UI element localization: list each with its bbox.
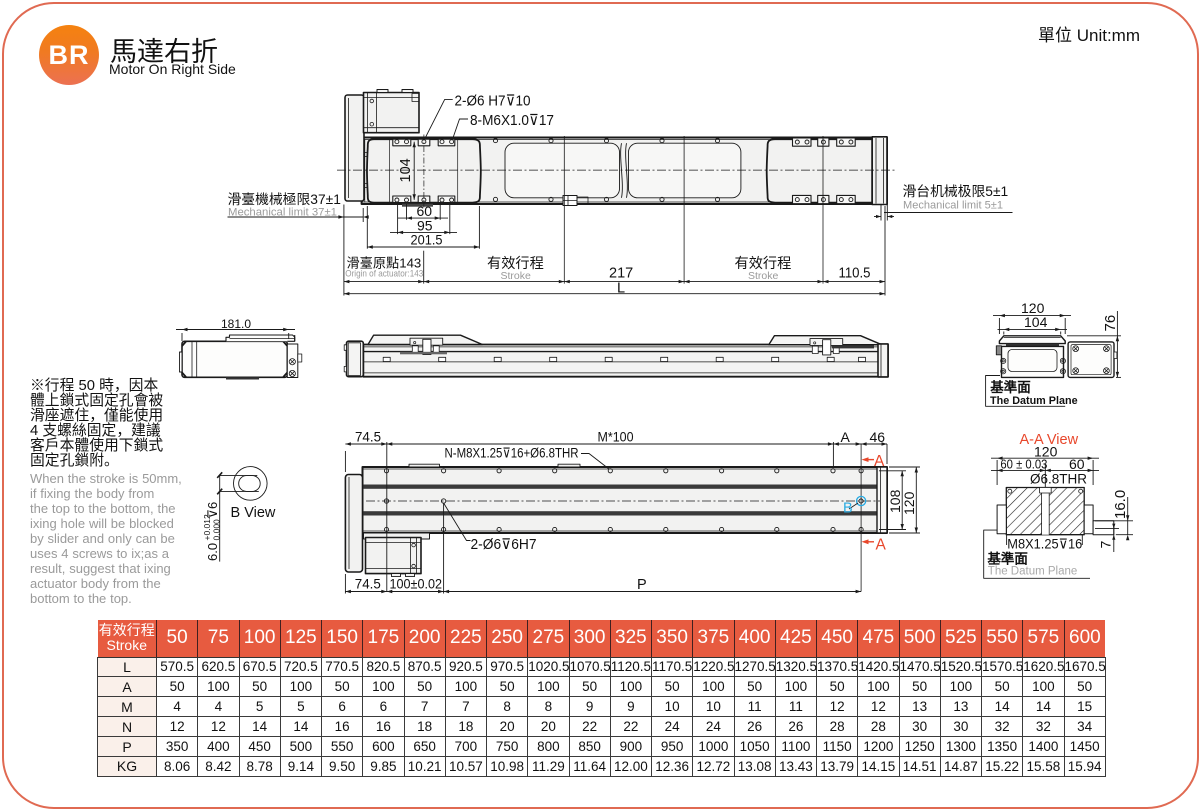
- svg-text:N-M8X1.25⊽16+Ø6.8THR: N-M8X1.25⊽16+Ø6.8THR: [445, 446, 579, 461]
- svg-text:6.0: 6.0: [205, 543, 220, 561]
- svg-text:16.0: 16.0: [1112, 490, 1129, 519]
- svg-text:104: 104: [1024, 314, 1048, 330]
- svg-text:P: P: [637, 577, 647, 593]
- svg-text:74.5: 74.5: [355, 576, 381, 592]
- svg-text:A: A: [876, 537, 887, 554]
- svg-text:Stroke: Stroke: [501, 270, 532, 282]
- svg-text:2-Ø6 H7⊽10: 2-Ø6 H7⊽10: [455, 93, 531, 110]
- svg-text:Stroke: Stroke: [748, 270, 779, 282]
- svg-text:217: 217: [609, 266, 633, 282]
- svg-text:60 ± 0.03: 60 ± 0.03: [1000, 457, 1047, 472]
- svg-text:⊽6: ⊽6: [205, 502, 220, 519]
- svg-text:基準面: 基準面: [987, 551, 1028, 567]
- svg-text:76: 76: [1102, 315, 1119, 332]
- svg-text:Ø6.8THR: Ø6.8THR: [1030, 472, 1087, 487]
- svg-text:201.5: 201.5: [411, 232, 443, 248]
- svg-text:L: L: [617, 281, 625, 297]
- svg-text:基準面: 基準面: [990, 379, 1031, 395]
- svg-text:滑臺機械極限37±1: 滑臺機械極限37±1: [228, 191, 341, 207]
- svg-text:A: A: [874, 453, 885, 470]
- svg-text:M*100: M*100: [598, 429, 634, 445]
- svg-text:M8X1.25⊽16: M8X1.25⊽16: [1007, 536, 1082, 551]
- svg-text:60: 60: [1069, 456, 1085, 472]
- svg-text:滑台机械极限5±1: 滑台机械极限5±1: [903, 183, 1009, 199]
- svg-text:120: 120: [901, 491, 917, 515]
- svg-text:181.0: 181.0: [221, 317, 251, 331]
- svg-text:7: 7: [1098, 541, 1114, 549]
- svg-text:46: 46: [870, 429, 886, 445]
- svg-text:The Datum Plane: The Datum Plane: [988, 566, 1078, 578]
- svg-text:100±0.02: 100±0.02: [390, 576, 443, 592]
- svg-text:The Datum Plane: The Datum Plane: [990, 395, 1078, 407]
- svg-text:Mechanical limit 5±1: Mechanical limit 5±1: [903, 200, 1003, 212]
- svg-text:B: B: [843, 501, 853, 517]
- svg-text:104: 104: [398, 158, 414, 182]
- svg-text:A: A: [841, 429, 851, 445]
- svg-text:0.000: 0.000: [212, 519, 222, 541]
- svg-text:74.5: 74.5: [355, 429, 381, 445]
- svg-text:Origin of actuator:143: Origin of actuator:143: [345, 268, 423, 278]
- svg-text:2-Ø6⊽6H7: 2-Ø6⊽6H7: [471, 537, 537, 553]
- svg-text:110.5: 110.5: [839, 266, 871, 282]
- svg-text:8-M6X1.0⊽17: 8-M6X1.0⊽17: [470, 112, 554, 129]
- svg-text:B View: B View: [231, 505, 276, 521]
